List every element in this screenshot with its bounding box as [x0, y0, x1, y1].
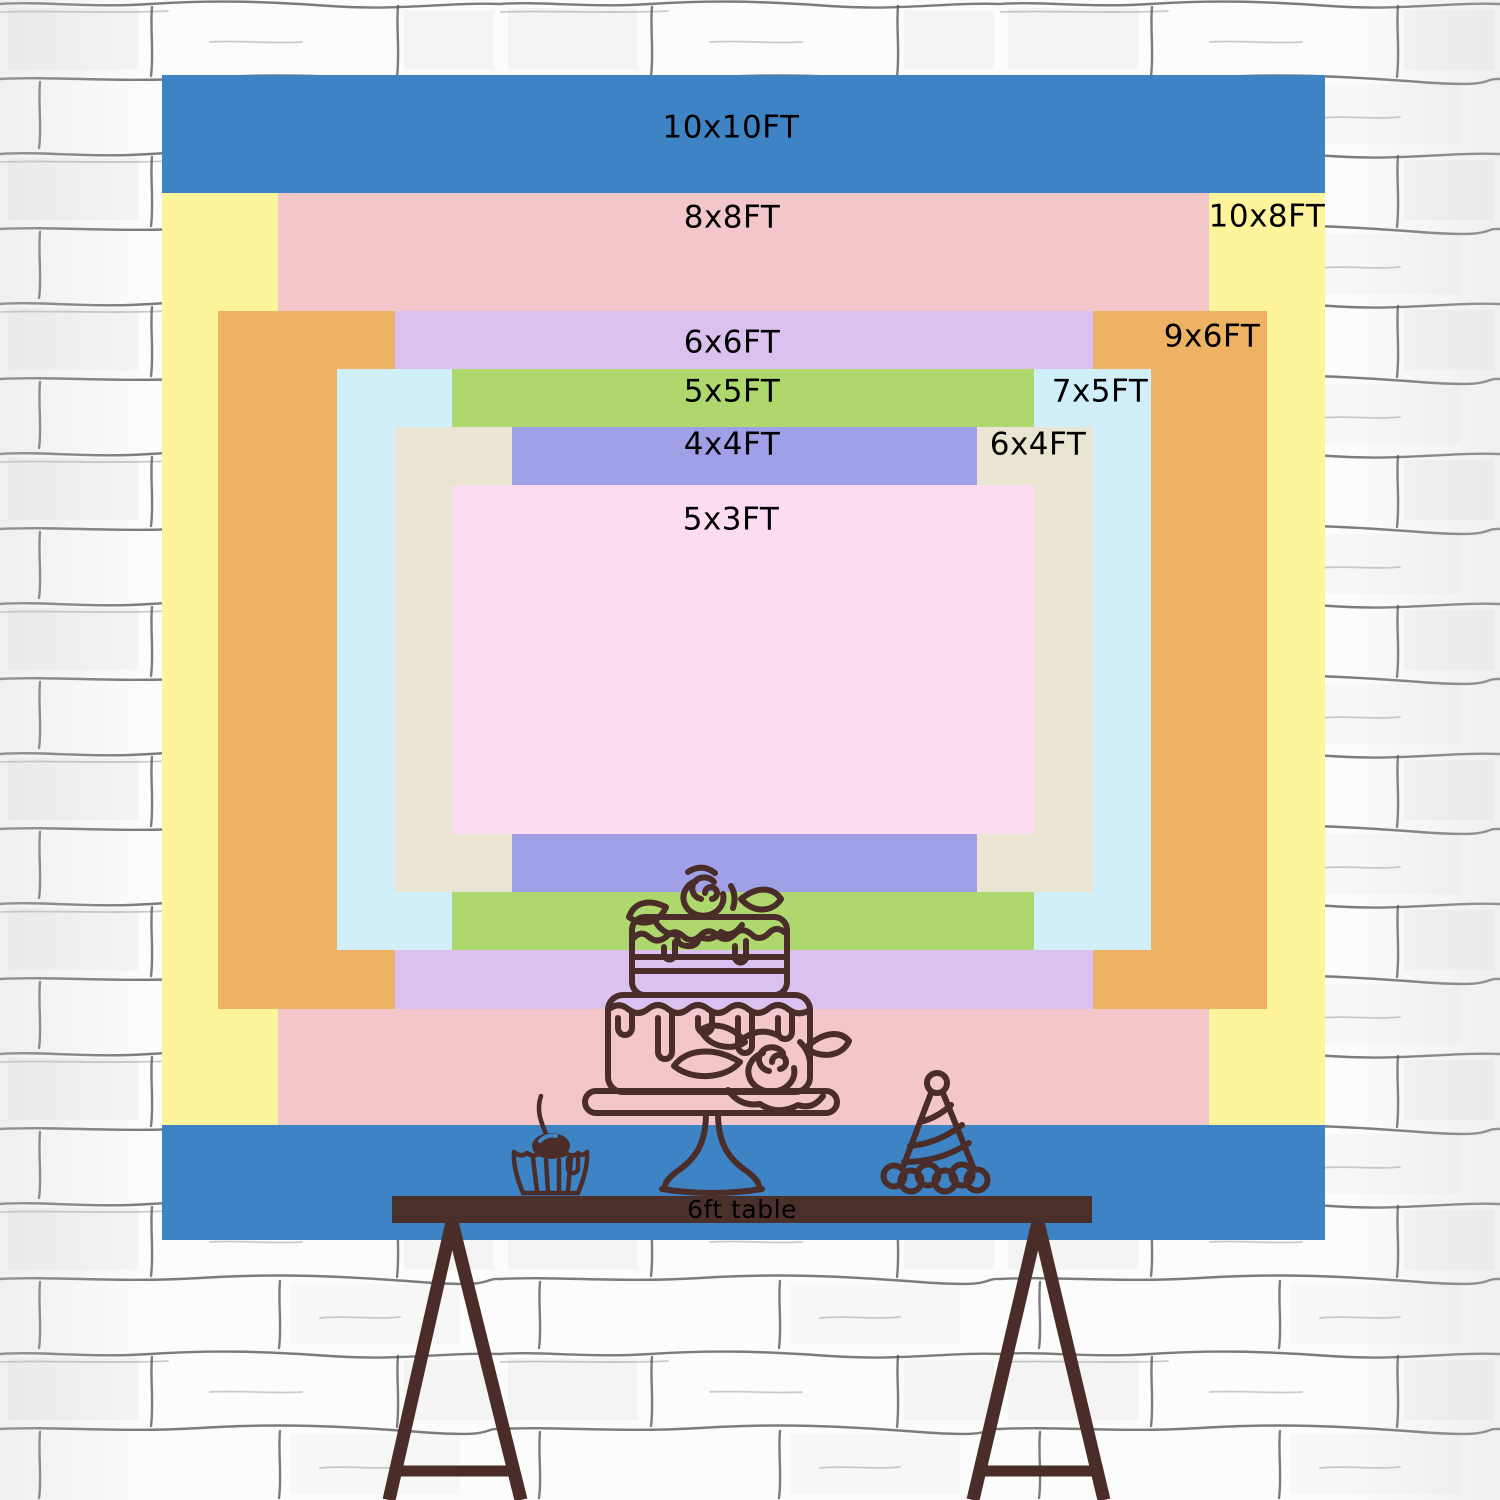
- size-label-10x8ft: 10x8FT: [1209, 202, 1326, 233]
- size-label-6x6ft: 6x6FT: [684, 328, 781, 359]
- size-label-5x5ft: 5x5FT: [684, 377, 781, 408]
- size-label-7x5ft: 7x5FT: [1052, 377, 1149, 408]
- size-label-4x4ft: 4x4FT: [684, 430, 781, 461]
- table-top: 6ft table: [392, 1196, 1092, 1223]
- size-label-5x3ft: 5x3FT: [683, 505, 780, 536]
- table-label: 6ft table: [687, 1195, 797, 1224]
- size-label-10x10ft: 10x10FT: [663, 113, 800, 144]
- size-label-6x4ft: 6x4FT: [990, 430, 1087, 461]
- size-label-9x6ft: 9x6FT: [1164, 322, 1261, 353]
- size-label-8x8ft: 8x8FT: [684, 203, 781, 234]
- backdrop-size-chart: 10x10FT 10x8FT 8x8FT 9x6FT 6x6FT 7x5FT 5…: [0, 0, 1500, 1500]
